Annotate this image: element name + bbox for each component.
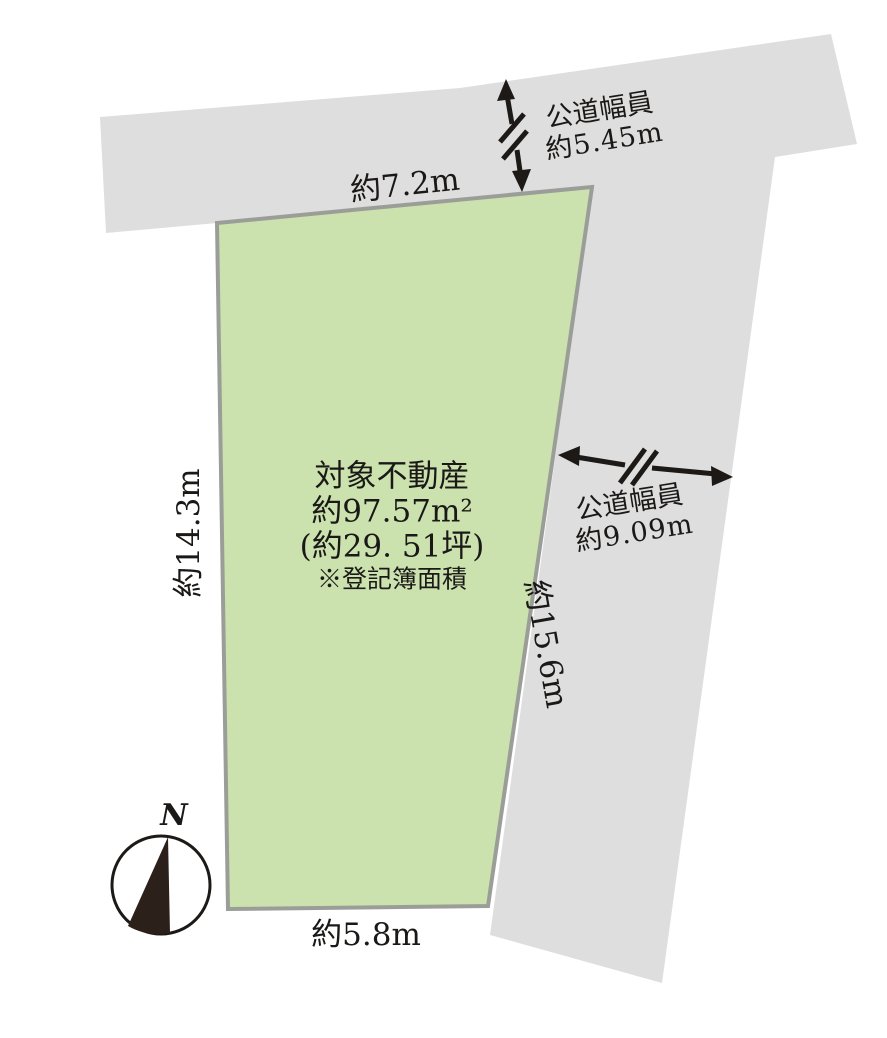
dimension-left: 約14.3m xyxy=(172,468,208,597)
compass xyxy=(112,836,210,934)
property-name: 対象不動産 xyxy=(300,460,485,495)
compass-north-label: N xyxy=(160,799,187,834)
property-area-tsubo: (約29. 51坪) xyxy=(300,530,485,565)
property-area-m2: 約97.57m² xyxy=(300,495,485,530)
property-info: 対象不動産 約97.57m² (約29. 51坪) ※登記簿面積 xyxy=(300,460,485,595)
land-plot-diagram: 公道幅員 約5.45m 公道幅員 約9.09m 約7.2m 約14.3m 約15… xyxy=(0,0,887,1038)
property-area-note: ※登記簿面積 xyxy=(300,565,485,595)
dimension-bottom: 約5.8m xyxy=(311,918,421,954)
